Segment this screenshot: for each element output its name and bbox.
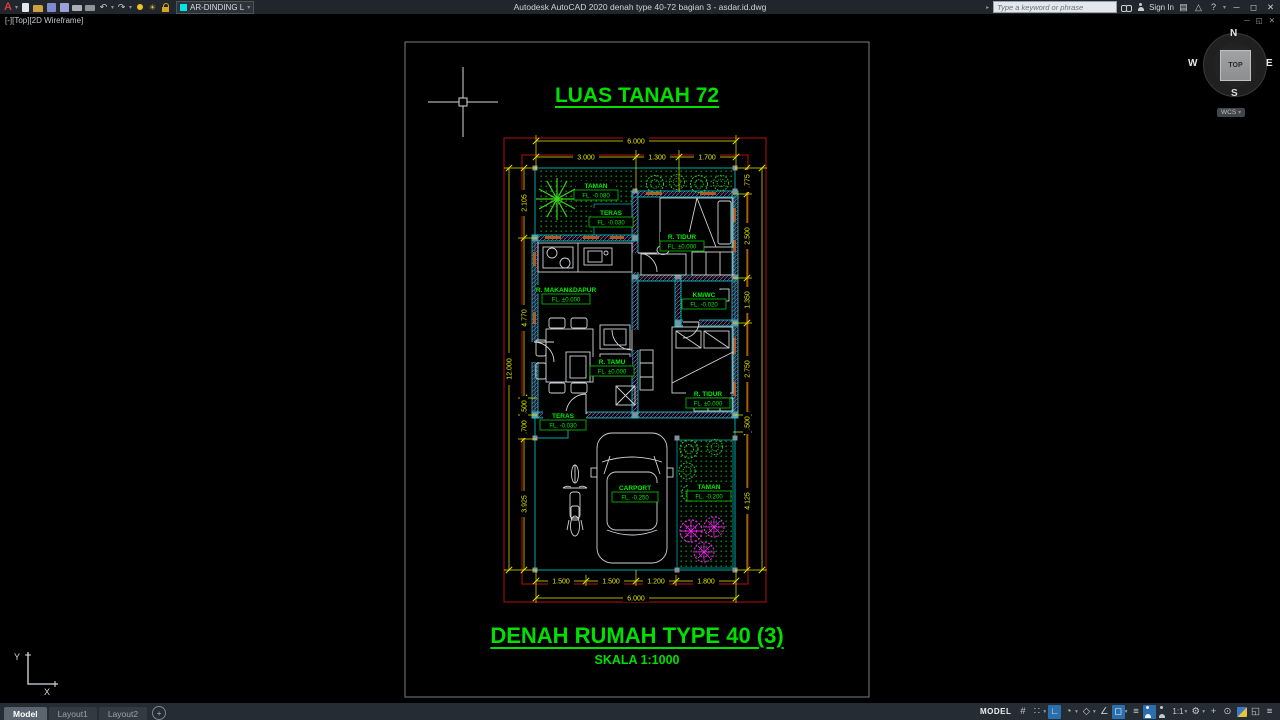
room-label-makan-dapur: R. MAKAN&DAPUR FL. ±0.000: [536, 285, 597, 304]
grid-icon[interactable]: #: [1016, 705, 1029, 719]
svg-text:TERAS: TERAS: [552, 413, 575, 420]
svg-text:1.800: 1.800: [697, 579, 715, 586]
svg-text:3.000: 3.000: [577, 155, 595, 162]
annotation-monitor-icon[interactable]: +: [1207, 705, 1220, 719]
svg-text:FL. -0.030: FL. -0.030: [549, 424, 577, 430]
svg-text:2.500: 2.500: [745, 227, 752, 245]
layer-on-icon[interactable]: [134, 2, 145, 13]
svg-text:1.200: 1.200: [647, 579, 665, 586]
plot-icon[interactable]: [72, 2, 83, 13]
layer-thaw-icon[interactable]: ☀: [147, 2, 158, 13]
clean-screen-icon[interactable]: ◱: [1249, 705, 1262, 719]
search-expand-icon[interactable]: ▸: [986, 4, 989, 11]
svg-text:4.125: 4.125: [745, 492, 752, 510]
svg-text:FL. -0.030: FL. -0.030: [597, 221, 625, 227]
viewcube-south-label[interactable]: S: [1231, 88, 1238, 99]
redo-icon[interactable]: ↷: [116, 2, 127, 13]
annotation-visibility-icon[interactable]: [1143, 705, 1156, 719]
svg-text:6.000: 6.000: [627, 596, 645, 603]
svg-text:TAMAN: TAMAN: [698, 484, 721, 491]
svg-text:R. TIDUR: R. TIDUR: [694, 391, 722, 398]
undo-icon[interactable]: ↶: [98, 2, 109, 13]
app-menu-caret-icon[interactable]: ▾: [15, 4, 18, 11]
isolate-objects-icon[interactable]: ⊙: [1221, 705, 1234, 719]
room-label-kmwc: KM/WC FL. -0.020: [682, 290, 726, 309]
svg-text:FL. -0.020: FL. -0.020: [690, 303, 718, 309]
workspace-gear-icon[interactable]: ⚙: [1189, 705, 1202, 719]
room-label-tamu: R. TAMU FL. ±0.000: [590, 357, 634, 376]
user-icon: [1136, 2, 1145, 12]
drawing-canvas[interactable]: 6.000 3.000 1.300 1.700 1.500 1.500 1.20…: [0, 0, 1280, 720]
room-label-tidur-top: R. TIDUR FL. ±0.000: [660, 232, 704, 251]
svg-text:4.770: 4.770: [522, 309, 529, 327]
viewcube[interactable]: N S W E TOP WCS▾: [1200, 30, 1270, 122]
svg-text:CARPORT: CARPORT: [619, 485, 651, 492]
save-as-icon[interactable]: [59, 2, 70, 13]
save-icon[interactable]: [46, 2, 57, 13]
svg-text:1.500: 1.500: [602, 579, 620, 586]
doc-minimize-button[interactable]: ─: [1244, 16, 1249, 25]
annotation-scale-caret-icon[interactable]: ▾: [1184, 709, 1187, 715]
viewport-controls[interactable]: [-][Top][2D Wireframe]: [5, 16, 83, 25]
lineweight-icon[interactable]: ≡: [1129, 705, 1142, 719]
room-label-teras-bottom: TERAS FL. -0.030: [540, 411, 586, 430]
svg-text:1.300: 1.300: [648, 155, 666, 162]
customization-icon[interactable]: ≡: [1263, 705, 1276, 719]
svg-text:2.105: 2.105: [522, 194, 529, 212]
room-label-taman-bottom: TAMAN FL. -0.200: [687, 482, 731, 501]
plan-scale-label: SKALA 1:1000: [405, 653, 869, 667]
open-icon[interactable]: [33, 2, 44, 13]
svg-text:X: X: [44, 687, 50, 697]
autocad-logo-icon[interactable]: A: [3, 2, 13, 13]
svg-text:12.000: 12.000: [507, 358, 514, 380]
new-layout-button[interactable]: +: [152, 706, 166, 720]
annotation-scale-button[interactable]: 1:1: [1171, 705, 1184, 719]
help-icon[interactable]: ?: [1208, 2, 1219, 13]
svg-text:Y: Y: [14, 652, 20, 662]
svg-text:R. TAMU: R. TAMU: [599, 359, 626, 366]
layer-name-label: AR-DINDING L: [190, 3, 244, 12]
sign-in-button[interactable]: Sign In: [1149, 3, 1174, 12]
room-label-tidur-bottom: R. TIDUR FL. ±0.000: [686, 389, 730, 408]
svg-text:.700: .700: [522, 420, 529, 434]
maximize-button[interactable]: ◻: [1247, 2, 1260, 13]
graphics-performance-icon[interactable]: [1235, 705, 1248, 719]
isodraft-icon[interactable]: ◇: [1080, 705, 1093, 719]
layer-color-swatch: [180, 4, 187, 11]
layer-lock-icon[interactable]: [160, 2, 171, 13]
status-bar: Model Layout1 Layout2 + MODEL # ∷▾ ∟ ◔▾ …: [0, 703, 1280, 720]
layout-tabs: Model Layout1 Layout2 +: [4, 703, 166, 720]
layer-caret-icon: ▾: [247, 4, 250, 11]
svg-text:FL. -0.200: FL. -0.200: [695, 495, 723, 501]
svg-text:KM/WC: KM/WC: [693, 292, 716, 299]
snap-caret-icon[interactable]: ▾: [1043, 709, 1046, 715]
osnap-caret-icon[interactable]: ▾: [1125, 709, 1128, 715]
stay-connected-icon[interactable]: △: [1193, 2, 1204, 13]
svg-text:TAMAN: TAMAN: [585, 183, 608, 190]
svg-text:FL. ±0.000: FL. ±0.000: [552, 298, 581, 304]
svg-text:TERAS: TERAS: [600, 210, 623, 217]
viewport-bar: [-][Top][2D Wireframe] ─ ◱ ✕: [0, 15, 1280, 26]
object-snap-tracking-icon[interactable]: ∠: [1098, 705, 1111, 719]
tab-layout2[interactable]: Layout2: [99, 707, 147, 720]
room-label-teras-top: TERAS FL. -0.030: [589, 208, 633, 227]
svg-text:2.750: 2.750: [745, 360, 752, 378]
svg-text:R. MAKAN&DAPUR: R. MAKAN&DAPUR: [536, 287, 597, 294]
viewcube-top-face[interactable]: TOP: [1220, 50, 1251, 81]
svg-text:3.925: 3.925: [522, 495, 529, 513]
model-space-button[interactable]: MODEL: [980, 707, 1011, 716]
polar-tracking-icon[interactable]: ◔: [1062, 705, 1075, 719]
svg-text:.500: .500: [522, 400, 529, 414]
tab-layout1[interactable]: Layout1: [49, 707, 97, 720]
svg-text:.775: .775: [745, 174, 752, 188]
viewcube-east-label[interactable]: E: [1266, 58, 1273, 69]
room-label-carport: CARPORT FL. -0.250: [612, 483, 658, 502]
help-caret-icon[interactable]: ▾: [1223, 4, 1226, 11]
new-drawing-icon[interactable]: [20, 2, 31, 13]
plan-bottom-title: DENAH RUMAH TYPE 40 (3): [405, 623, 869, 649]
ortho-icon[interactable]: ∟: [1048, 705, 1061, 719]
svg-text:1.350: 1.350: [745, 291, 752, 309]
redo-caret-icon[interactable]: ▾: [129, 4, 132, 11]
svg-text:.500: .500: [745, 416, 752, 430]
tab-model[interactable]: Model: [4, 707, 47, 720]
app-store-cart-icon[interactable]: ▤: [1178, 2, 1189, 13]
svg-text:R. TIDUR: R. TIDUR: [668, 234, 696, 241]
viewcube-north-label[interactable]: N: [1230, 28, 1237, 39]
search-input[interactable]: [993, 1, 1117, 13]
svg-text:FL. ±0.000: FL. ±0.000: [668, 245, 697, 251]
doc-close-button[interactable]: ✕: [1269, 16, 1275, 25]
isodraft-caret-icon[interactable]: ▾: [1093, 709, 1096, 715]
svg-text:1.500: 1.500: [552, 579, 570, 586]
svg-text:FL. -0.250: FL. -0.250: [621, 496, 649, 502]
workspace-caret-icon[interactable]: ▾: [1202, 709, 1205, 715]
doc-restore-button[interactable]: ◱: [1256, 16, 1263, 25]
svg-text:1.700: 1.700: [698, 155, 716, 162]
undo-caret-icon[interactable]: ▾: [111, 4, 114, 11]
plan-top-title: LUAS TANAH 72: [405, 84, 869, 108]
viewcube-wcs-button[interactable]: WCS▾: [1217, 108, 1245, 117]
annotation-autoscale-icon[interactable]: [1157, 705, 1170, 719]
minimize-button[interactable]: ─: [1230, 2, 1243, 12]
search-icon[interactable]: [1121, 3, 1132, 12]
svg-text:FL. ±0.000: FL. ±0.000: [694, 402, 723, 408]
print-icon[interactable]: [85, 2, 96, 13]
ucs-icon: Y X: [14, 652, 58, 697]
layer-dropdown[interactable]: AR-DINDING L ▾: [176, 1, 254, 14]
room-label-taman-top: TAMAN FL. -0.080: [574, 181, 618, 200]
polar-caret-icon[interactable]: ▾: [1075, 709, 1078, 715]
svg-text:6.000: 6.000: [627, 139, 645, 146]
wcs-caret-icon: ▾: [1238, 109, 1241, 116]
svg-text:FL. ±0.000: FL. ±0.000: [598, 370, 627, 376]
viewcube-west-label[interactable]: W: [1188, 58, 1197, 69]
svg-text:FL. -0.080: FL. -0.080: [582, 194, 610, 200]
object-snap-icon[interactable]: ◻: [1112, 705, 1125, 719]
app-title-bar: A ▾ ↶▾ ↷▾ ☀ AR-DINDING L ▾ Autodesk Auto…: [0, 0, 1280, 14]
close-button[interactable]: ✕: [1264, 2, 1277, 13]
snap-icon[interactable]: ∷: [1030, 705, 1043, 719]
